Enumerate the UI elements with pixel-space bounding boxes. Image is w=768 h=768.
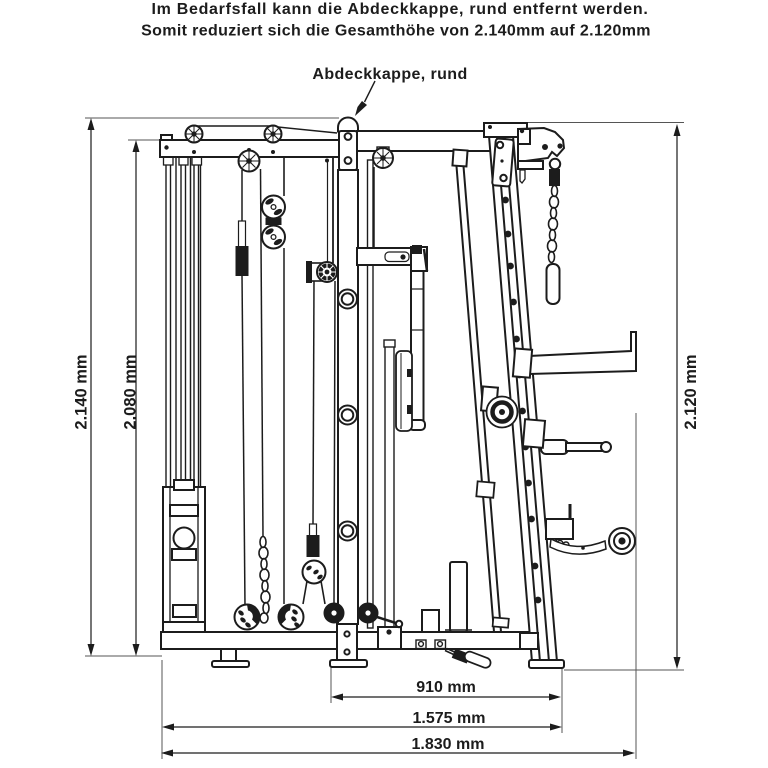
svg-text:2.140 mm: 2.140 mm bbox=[73, 354, 91, 429]
svg-text:1.830 mm: 1.830 mm bbox=[412, 736, 485, 753]
svg-text:Im Bedarfsfall kann die Abdeck: Im Bedarfsfall kann die Abdeckkappe, run… bbox=[152, 1, 649, 18]
svg-text:1.575 mm: 1.575 mm bbox=[413, 710, 486, 727]
svg-text:Abdeckkappe, rund: Abdeckkappe, rund bbox=[312, 66, 467, 83]
svg-text:2.120 mm: 2.120 mm bbox=[682, 354, 700, 429]
svg-text:2.080 mm: 2.080 mm bbox=[122, 354, 140, 429]
svg-text:910 mm: 910 mm bbox=[416, 679, 476, 696]
svg-text:Somit reduziert sich die Gesam: Somit reduziert sich die Gesamthöhe von … bbox=[141, 23, 651, 40]
